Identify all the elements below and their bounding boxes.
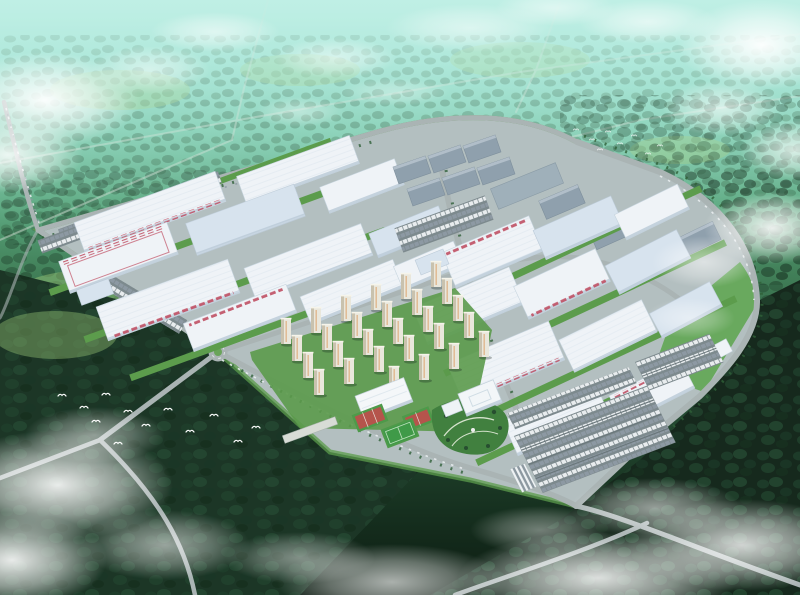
scene-canvas: Aerial bird's-eye rendering of a large i… [0,0,800,595]
aerial-rendering: Aerial bird's-eye rendering of a large i… [0,0,800,595]
park-plaza [471,428,475,432]
